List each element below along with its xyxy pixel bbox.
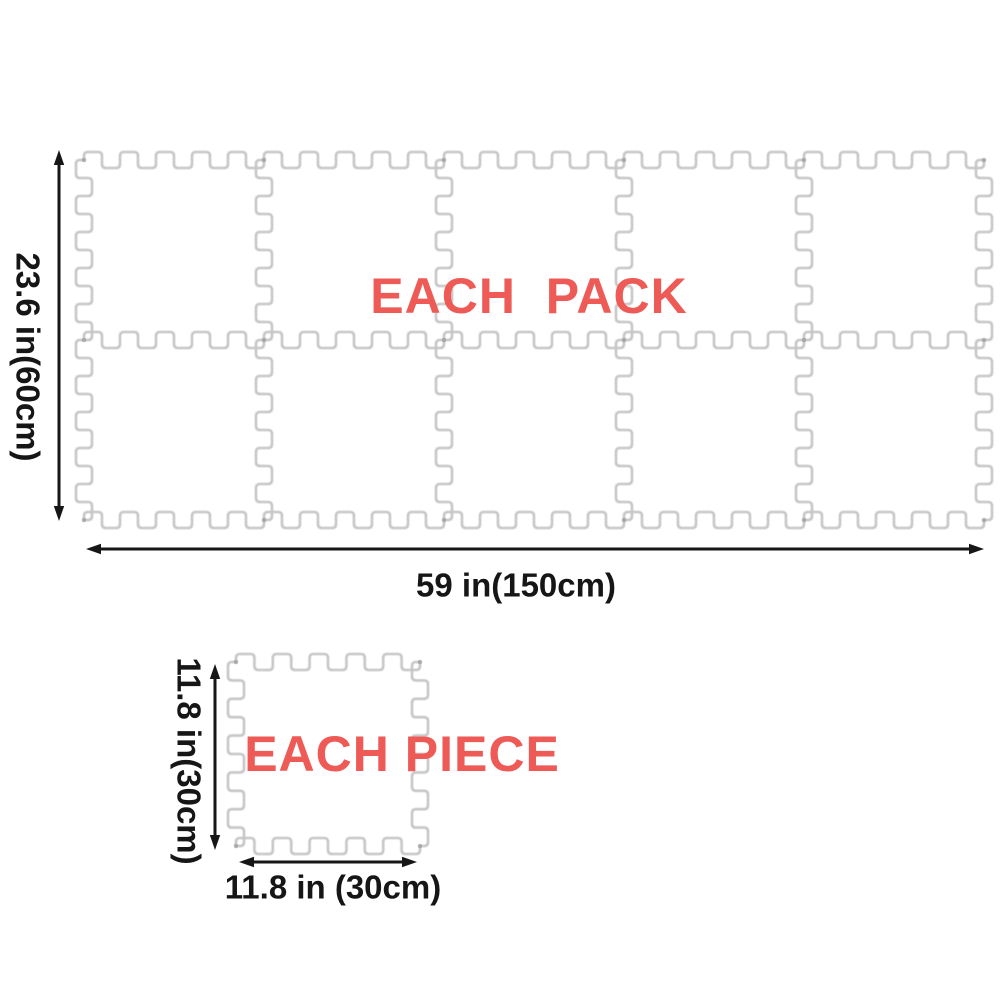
pack-mat-grid: [76, 152, 992, 528]
piece-width-dimension-label: 11.8 in (30cm): [225, 871, 441, 904]
diagram-svg: [0, 0, 1000, 1000]
foam-mat-dimension-diagram: 23.6 in(60cm) EACH PACK 59 in(150cm) 11.…: [0, 0, 1000, 1000]
piece-width-arrow: [239, 857, 417, 867]
pack-height-arrow: [54, 150, 64, 521]
pack-width-arrow: [86, 544, 984, 554]
piece-height-arrow: [210, 664, 220, 850]
each-pack-title: EACH PACK: [370, 271, 687, 321]
pack-height-dimension-label: 23.6 in(60cm): [12, 252, 45, 461]
each-piece-title: EACH PIECE: [244, 729, 560, 779]
piece-height-dimension-label: 11.8 in(30cm): [173, 657, 206, 864]
pack-width-dimension-label: 59 in(150cm): [416, 569, 616, 602]
